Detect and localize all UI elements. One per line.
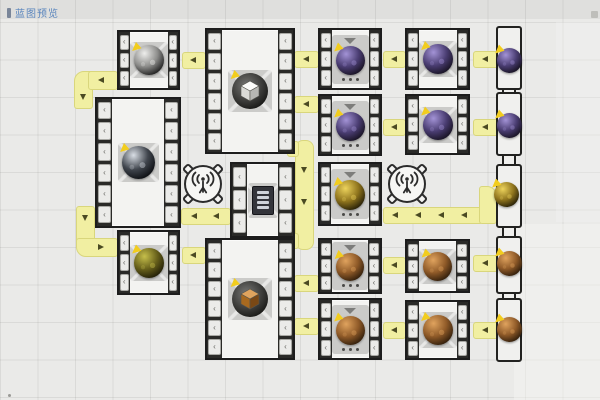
io-slot: ‹ [408,51,418,67]
machine-icon-tile [419,41,457,77]
item-disc-icon [232,281,268,317]
io-slot: ‹ [208,133,221,150]
io-slot: ‹ [370,303,380,319]
io-slot: ‹ [457,276,467,289]
resource-orb-black [122,146,155,179]
io-slot: ‹ [233,213,246,233]
machine-slot-column-left: ‹‹‹ [320,240,332,292]
machine-icon-tile [419,312,457,348]
io-slot: ‹ [321,70,331,86]
header-bar-icon [7,8,11,18]
output-item-icon [497,251,522,276]
io-slot: ‹ [321,303,331,319]
machine-slot-column-right: ‹‹‹ [168,32,179,88]
io-slot: ‹ [321,276,331,290]
furnace-dots-icon [342,284,359,287]
io-slot: ‹ [279,73,292,90]
machine-B4[interactable]: ‹‹‹‹‹‹ [405,239,470,293]
belt-arrow-icon [415,212,421,218]
machine-slot-column-right: ‹‹‹ [278,164,293,236]
machine-item-icon [423,110,453,140]
machine-A4[interactable]: ‹‹‹‹‹‹ [318,238,382,294]
machine-slot-column-left: ‹‹‹ [320,164,331,224]
background-patch [556,22,600,222]
furnace-dots-icon [342,144,359,147]
io-slot: ‹ [408,33,418,49]
io-slot: ‹ [321,321,331,337]
belt-arrow-icon [461,212,467,218]
output-orb-wrap [497,113,522,138]
furnace-vent-icon [344,245,356,251]
io-slot: ‹ [208,73,221,90]
machine-item-icon [134,248,164,278]
furnace-dots-icon [342,348,359,351]
machine-center [112,99,164,226]
machine-slot-column-left: ‹‹‹ [232,164,247,236]
io-slot: ‹ [458,341,468,356]
io-slot: ‹ [208,53,221,70]
machine-slot-column-right: ‹‹‹ [369,30,381,88]
item-disc-icon [232,73,268,109]
belt-arrow-icon [391,56,397,62]
output-item-icon [497,113,522,138]
belt-arrow-icon [303,323,309,329]
belt-arrow-icon [301,167,307,173]
machine-icon-tile [331,169,369,219]
machine-item-icon [423,315,453,345]
belt-arrow-icon [482,260,488,266]
io-slot: ‹ [98,206,111,224]
machine-item-icon [336,112,365,141]
output-orb-wrap [497,251,522,276]
io-slot: ‹ [321,259,331,273]
belt-arrow-icon [391,124,397,130]
machine-center [130,232,168,293]
io-slot: ‹ [321,340,331,356]
background-patch [514,224,600,400]
machine-icon-tile [332,101,369,150]
io-slot: ‹ [321,205,330,221]
resource-orb-silver [134,45,164,75]
io-slot: ‹ [321,136,331,152]
machine-item-icon [423,252,452,281]
machine-center [419,302,457,358]
machine-slot-column-left: ‹‹‹ [320,300,332,358]
machine-icon-tile [419,107,457,143]
io-slot: ‹ [98,102,111,120]
io-slot: ‹ [458,323,468,338]
top-strip [0,0,600,19]
belt-arrow-icon [482,56,488,62]
canvas-dot [8,394,11,397]
io-slot: ‹ [279,167,292,187]
io-slot: ‹ [208,320,221,336]
machine-slot-column-left: ‹‹‹ [407,30,419,88]
io-slot: ‹ [98,122,111,140]
io-slot: ‹ [408,244,418,257]
furnace-dots-icon [342,213,359,216]
station-station-2[interactable] [388,165,426,203]
output-orb-wrap [497,317,522,342]
io-slot: ‹ [98,185,111,203]
io-slot: ‹ [370,321,380,337]
io-slot: ‹ [408,117,418,132]
io-slot: ‹ [370,117,380,133]
circuit-item-icon [252,186,274,215]
io-slot: ‹ [279,53,292,70]
machine-slot-column-left: ‹‹‹ [407,241,419,291]
io-slot: ‹ [370,136,380,152]
machine-slot-column-right: ‹‹‹ [369,300,381,358]
machine-icon-tile [332,242,368,290]
machine-slot-column-left: ‹‹‹ [119,232,130,293]
io-slot: ‹ [408,260,418,273]
io-slot: ‹ [165,164,178,182]
belt-arrow-icon [213,213,219,219]
io-slot: ‹ [169,71,178,86]
io-slot: ‹ [321,186,330,202]
io-slot: ‹ [169,35,178,50]
io-slot: ‹ [279,213,292,233]
blueprint-preview-header: 蓝图预览 [7,5,59,20]
machine-center [222,30,278,152]
machine-L1[interactable]: ‹‹‹‹‹‹ [117,30,180,90]
io-slot: ‹ [208,113,221,130]
io-slot: ‹ [233,167,246,187]
antenna-icon [388,165,426,203]
machine-slot-column-right: ‹‹‹‹‹‹ [164,99,179,226]
machine-slot-column-right: ‹‹‹ [168,232,179,293]
io-slot: ‹ [279,320,292,336]
machine-item-icon [423,44,453,74]
io-slot: ‹ [165,185,178,203]
belt-arrow-icon [482,327,488,333]
belt-arrow-icon [482,124,488,130]
machine-slot-column-left: ‹‹‹ [320,30,332,88]
corner-marker-icon [591,11,598,18]
belt-arrow-icon [303,56,309,62]
machine-slot-column-right: ‹‹‹‹‹‹ [278,240,293,358]
io-slot: ‹ [370,186,379,202]
io-slot: ‹ [321,243,331,257]
machine-center [332,300,369,358]
machine-item-icon [122,146,155,179]
machine-A1[interactable]: ‹‹‹‹‹‹ [318,28,382,90]
io-slot: ‹ [208,339,221,355]
output-item-icon [497,317,522,342]
io-slot: ‹ [458,33,468,49]
io-slot: ‹ [208,300,221,316]
machine-A2[interactable]: ‹‹‹‹‹‹ [318,94,382,156]
io-slot: ‹ [120,35,129,50]
io-slot: ‹ [279,113,292,130]
io-slot: ‹ [98,143,111,161]
machine-icon-tile [118,143,159,182]
io-slot: ‹ [169,274,178,291]
belt-elbow-mid-left[interactable] [76,238,118,257]
machine-item-icon [336,253,364,281]
io-slot: ‹ [457,260,467,273]
machine-B5[interactable]: ‹‹‹‹‹‹ [405,300,470,360]
machine-center [331,164,369,224]
furnace-vent-icon [344,104,356,110]
machine-center [419,30,457,88]
blueprint-preview-label: 蓝图预览 [15,5,59,20]
io-slot: ‹ [98,164,111,182]
machine-icon-tile [130,245,168,281]
io-slot: ‹ [458,135,468,150]
machine-slot-column-right: ‹‹‹ [456,241,468,291]
belt-arrow-icon [303,280,309,286]
belt-arrow-icon [191,213,197,219]
blueprint-canvas[interactable]: 蓝图预览 ‹‹‹‹‹‹‹‹‹‹‹‹‹‹‹‹‹‹‹‹‹‹‹‹‹‹‹‹‹‹‹‹‹‹‹… [0,0,600,400]
io-slot: ‹ [370,167,379,183]
machine-slot-column-right: ‹‹‹ [369,96,381,154]
resource-orb-purple [423,44,453,74]
machine-center [332,96,369,154]
machine-L2[interactable]: ‹‹‹‹‹‹‹‹‹‹‹‹ [95,97,181,228]
belt-arrow-icon [190,252,196,258]
machine-slot-column-left: ‹‹‹ [119,32,130,88]
machine-center [332,240,368,292]
io-slot: ‹ [169,235,178,252]
machine-A5[interactable]: ‹‹‹‹‹‹ [318,298,382,360]
furnace-vent-icon [344,308,356,314]
machine-slot-column-left: ‹‹‹ [407,96,419,153]
io-slot: ‹ [457,244,467,257]
belt-b-row3-long[interactable] [383,207,483,224]
io-slot: ‹ [120,235,129,252]
machine-L3[interactable]: ‹‹‹‹‹‹ [117,230,180,295]
machine-item-icon [335,180,365,210]
io-slot: ‹ [169,254,178,271]
station-station-1[interactable] [184,165,222,203]
io-slot: ‹ [208,281,221,297]
io-slot: ‹ [369,243,379,257]
io-slot: ‹ [321,51,331,67]
machine-icon-tile [130,42,168,78]
machine-slot-column-right: ‹‹‹ [457,302,469,358]
io-slot: ‹ [458,99,468,114]
resource-orb-purple [423,110,453,140]
io-slot: ‹ [279,133,292,150]
belt-b-station1[interactable] [181,208,231,225]
io-slot: ‹ [120,274,129,291]
io-slot: ‹ [370,33,380,49]
io-slot: ‹ [408,305,418,320]
machine-M2[interactable]: ‹‹‹‹‹‹‹‹‹‹‹‹ [205,28,295,154]
io-slot: ‹ [208,93,221,110]
belt-arrow-icon [82,215,88,221]
io-slot: ‹ [370,70,380,86]
machine-item-icon [336,316,365,345]
machine-item-icon [232,281,268,317]
io-slot: ‹ [321,99,331,115]
io-slot: ‹ [458,70,468,86]
machine-center [222,240,278,358]
io-slot: ‹ [370,205,379,221]
machine-item-icon [134,45,164,75]
machine-slot-column-left: ‹‹‹ [407,302,419,358]
output-orb-wrap [494,182,519,207]
io-slot: ‹ [279,281,292,297]
io-slot: ‹ [165,206,178,224]
machine-center [419,241,456,291]
io-slot: ‹ [208,243,221,259]
io-slot: ‹ [321,117,331,133]
machine-icon-tile [419,249,456,284]
machine-slot-column-right: ‹‹‹‹‹‹ [278,30,293,152]
furnace-vent-icon [344,38,356,44]
io-slot: ‹ [279,262,292,278]
machine-icon-tile [332,305,369,354]
resource-orb-gold [335,180,365,210]
io-slot: ‹ [408,70,418,86]
machine-A3[interactable]: ‹‹‹‹‹‹ [318,162,382,226]
io-slot: ‹ [408,276,418,289]
io-slot: ‹ [408,341,418,356]
machine-icon-tile [228,278,272,320]
io-slot: ‹ [120,53,129,68]
io-slot: ‹ [321,167,330,183]
belt-arrow-icon [301,199,307,205]
machine-slot-column-left: ‹‹‹‹‹‹ [207,240,222,358]
machine-center [130,32,168,88]
io-slot: ‹ [279,33,292,50]
machine-item-icon [232,73,268,109]
machine-slot-column-left: ‹‹‹ [320,96,332,154]
io-slot: ‹ [279,93,292,110]
machine-slot-column-right: ‹‹‹ [457,30,469,88]
machine-slot-column-right: ‹‹‹ [369,164,380,224]
resource-orb-copper [423,315,453,345]
output-item-icon [494,182,519,207]
machine-item-icon [336,46,365,75]
io-slot: ‹ [120,254,129,271]
machine-M3[interactable]: ‹‹‹‹‹‹ [230,162,295,238]
io-slot: ‹ [165,143,178,161]
furnace-vent-icon [344,172,356,178]
io-slot: ‹ [370,51,380,67]
io-slot: ‹ [279,339,292,355]
machine-M4[interactable]: ‹‹‹‹‹‹‹‹‹‹‹‹ [205,238,295,360]
output-item-icon [497,48,522,73]
io-slot: ‹ [370,99,380,115]
io-slot: ‹ [369,259,379,273]
belt-arrow-icon [303,101,309,107]
machine-slot-column-right: ‹‹‹ [368,240,380,292]
machine-icon-tile [228,70,272,112]
machine-B1[interactable]: ‹‹‹‹‹‹ [405,28,470,90]
resource-orb-olive [134,248,164,278]
io-slot: ‹ [169,53,178,68]
io-slot: ‹ [370,340,380,356]
io-slot: ‹ [458,51,468,67]
belt-arrow-icon [98,244,104,250]
belt-arrow-icon [391,327,397,333]
machine-slot-column-left: ‹‹‹‹‹‹ [97,99,112,226]
io-slot: ‹ [408,323,418,338]
antenna-icon [184,165,222,203]
machine-center [332,30,369,88]
io-slot: ‹ [408,99,418,114]
io-slot: ‹ [279,300,292,316]
io-slot: ‹ [233,190,246,210]
machine-slot-column-left: ‹‹‹‹‹‹ [207,30,222,152]
io-slot: ‹ [208,262,221,278]
belt-arrow-icon [391,262,397,268]
belt-arrow-icon [392,212,398,218]
io-slot: ‹ [208,33,221,50]
io-slot: ‹ [458,117,468,132]
machine-icon-tile [332,35,369,84]
machine-center [247,164,278,236]
io-slot: ‹ [408,135,418,150]
io-slot: ‹ [369,276,379,290]
machine-center [419,96,457,153]
furnace-dots-icon [342,78,359,81]
io-slot: ‹ [165,102,178,120]
belt-arrow-icon [190,57,196,63]
machine-B2[interactable]: ‹‹‹‹‹‹ [405,94,470,155]
belt-arrow-icon [80,94,86,100]
belt-arrow-icon [438,212,444,218]
io-slot: ‹ [458,305,468,320]
io-slot: ‹ [120,71,129,86]
io-slot: ‹ [321,33,331,49]
machine-icon-tile [248,183,278,218]
io-slot: ‹ [279,243,292,259]
io-slot: ‹ [279,190,292,210]
io-slot: ‹ [165,122,178,140]
belt-arrow-icon [98,77,104,83]
machine-slot-column-right: ‹‹‹ [457,96,469,153]
output-orb-wrap [497,48,522,73]
